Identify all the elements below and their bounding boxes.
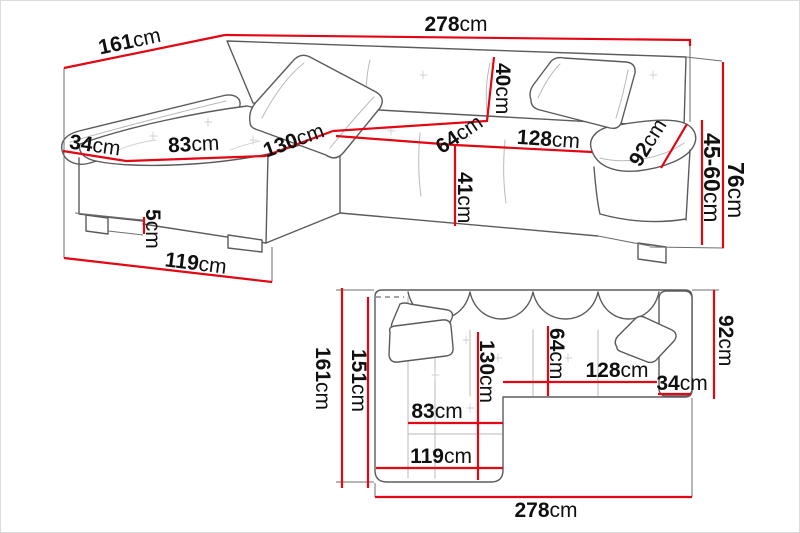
label-bed-length-top: 151cm [347,349,370,412]
label-chaise-seat-width-top: 83cm [411,400,462,423]
label-total-length: 278cm [424,13,487,36]
label-chaise-length-top: 130cm [475,340,498,403]
sofa-dimension-diagram: 278cm 161cm 34cm 83cm 130cm 64cm 40cm 12… [0,0,800,533]
label-chaise-depth-top: 161cm [311,347,334,410]
chaise-leg [86,215,108,234]
label-chaise-seat-width: 83cm [167,132,219,158]
label-armrest-width-top: 34cm [656,372,707,395]
label-total-length-top: 278cm [514,499,577,522]
label-seat-length-top: 128cm [585,359,648,382]
label-back-height: 40cm [491,63,514,114]
pillow-top-front [389,320,453,362]
diagram-canvas: 278cm 161cm 34cm 83cm 130cm 64cm 40cm 12… [0,0,800,533]
label-seat-depth-top: 64cm [545,328,568,379]
label-total-height: 76cm [723,162,749,218]
right-leg [638,243,666,263]
label-armrest-height: 45-60cm [699,133,725,223]
label-body-depth-top: 92cm [714,315,737,366]
label-seat-length: 128cm [516,126,580,153]
label-leg-height: 5cm [141,209,164,249]
label-seat-height: 41cm [453,172,476,223]
label-chaise-front-width-top: 119cm [410,445,472,468]
